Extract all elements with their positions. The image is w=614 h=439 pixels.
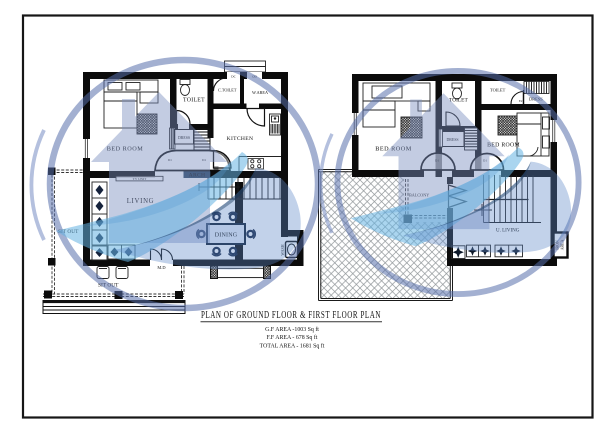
svg-text:W.AREA: W.AREA <box>252 90 268 95</box>
svg-text:TOILET: TOILET <box>183 98 205 104</box>
svg-text:TOILET: TOILET <box>490 88 506 93</box>
svg-text:DC: DC <box>231 75 235 79</box>
svg-text:TOTAL AREA - 1681 Sq ft: TOTAL AREA - 1681 Sq ft <box>260 342 325 349</box>
svg-text:E2: E2 <box>519 99 523 103</box>
svg-text:PLAN OF GROUND FLOOR & FIRST F: PLAN OF GROUND FLOOR & FIRST FLOOR PLAN <box>201 310 381 321</box>
svg-text:C.TOILET: C.TOILET <box>218 88 237 93</box>
svg-text:F.F AREA - 678 Sq ft: F.F AREA - 678 Sq ft <box>267 334 318 341</box>
svg-text:M.D: M.D <box>157 265 165 270</box>
svg-text:G.F AREA -1003 Sq ft: G.F AREA -1003 Sq ft <box>265 326 319 333</box>
svg-text:KITCHEN: KITCHEN <box>227 136 254 142</box>
